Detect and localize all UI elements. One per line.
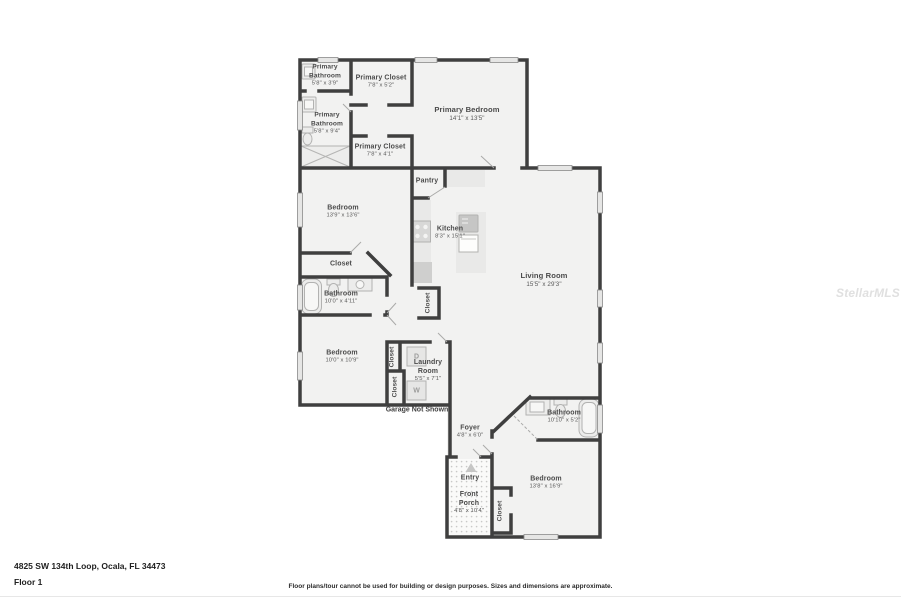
washer-letter: W	[413, 387, 420, 394]
floor-plan-page: Primary Bathroom 5'8" x 3'9" Primary Clo…	[0, 0, 901, 600]
garage-note: Garage Not Shown	[386, 407, 449, 414]
stellar-mls-watermark: StellarMLS	[836, 286, 900, 300]
footer-divider	[0, 596, 901, 597]
dryer-letter: D	[414, 353, 419, 360]
floor-plan-drawing	[0, 0, 901, 600]
disclaimer-text: Floor plans/tour cannot be used for buil…	[0, 583, 901, 590]
property-address: 4825 SW 134th Loop, Ocala, FL 34473	[14, 561, 166, 571]
